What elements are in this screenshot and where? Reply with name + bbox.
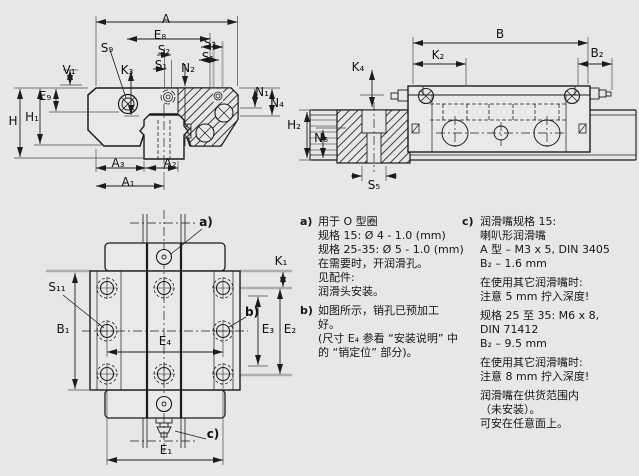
dim-label-N6: N₆	[314, 132, 328, 145]
note-line: 在使用其它润滑嘴时:	[480, 276, 637, 290]
note-line: 喇叭形润滑嘴	[480, 229, 637, 243]
dim-label-A1: A₁	[121, 176, 134, 189]
note-line: 润滑嘴规格 15:	[480, 215, 637, 229]
dim-label-S1-left: S₁	[155, 59, 167, 72]
note-line: 好。	[318, 318, 472, 332]
dim-label-S11: S₁₁	[48, 281, 65, 294]
dim-label-A2: A₂	[163, 157, 176, 170]
dim-label-K3: K₃	[121, 64, 134, 77]
note-paragraph: 在使用其它润滑嘴时: 注意 8 mm 拧入深度!	[480, 356, 637, 384]
dim-label-K2: K₂	[432, 49, 445, 62]
side-view	[299, 37, 636, 181]
callout-a: a)	[199, 216, 213, 229]
note-line: DIN 71412	[480, 323, 637, 337]
note-paragraph: 润滑嘴规格 15: 喇叭形润滑嘴 A 型 – M3 x 5, DIN 3405 …	[480, 215, 637, 271]
note-paragraph: 规格 25 至 35: M6 x 8, DIN 71412 B₂ – 9.5 m…	[480, 309, 637, 351]
dim-label-B2: B₂	[590, 47, 603, 60]
note-line: 注意 8 mm 拧入深度!	[480, 370, 637, 384]
note-line: B₂ – 9.5 mm	[480, 337, 637, 351]
dim-label-S5: S₅	[368, 179, 380, 192]
note-line: 在需要时，开润滑孔。	[318, 257, 472, 271]
cross-section-view	[14, 16, 280, 190]
callout-b: b)	[245, 306, 259, 319]
note-line: 规格 25-35: Ø 5 - 1.0 (mm)	[318, 243, 472, 257]
dim-label-N4: N₄	[270, 97, 284, 110]
dim-label-N2: N₂	[181, 62, 195, 75]
dim-label-K4: K₄	[352, 61, 365, 74]
note-b: b) 如图所示，销孔已预加工 好。 (尺寸 E₄ 参看 “安装说明” 中 的 “…	[300, 304, 472, 360]
note-line: 可安在任意面上。	[480, 417, 637, 431]
note-line: （未安装）。	[480, 403, 637, 417]
dim-label-H: H	[8, 115, 17, 128]
dim-label-S1-right: S₁	[202, 51, 214, 64]
dim-label-S9: S₉	[101, 42, 113, 55]
note-paragraph: 润滑嘴在供货范围内 （未安装）。 可安在任意面上。	[480, 389, 637, 431]
dim-label-S2-left: S₂	[158, 44, 170, 57]
note-line: 规格 25 至 35: M6 x 8,	[480, 309, 637, 323]
note-line: 的 “销定位” 部分)。	[318, 346, 472, 360]
note-a: a) 用于 O 型圈 规格 15: Ø 4 - 1.0 (mm) 规格 25-3…	[300, 215, 472, 299]
dim-label-E1: E₁	[160, 444, 172, 457]
dim-label-A: A	[162, 13, 170, 26]
dim-label-E2: E₂	[284, 323, 296, 336]
note-line: 用于 O 型圈	[318, 215, 472, 229]
callout-c: c)	[207, 428, 220, 441]
note-line: 润滑头安装。	[318, 285, 472, 299]
dim-label-B: B	[496, 28, 504, 41]
dim-label-H1: H₁	[25, 111, 39, 124]
dim-label-A3: A₃	[111, 157, 124, 170]
note-c-tag: c)	[462, 215, 474, 229]
note-line: 如图所示，销孔已预加工	[318, 304, 472, 318]
note-line: 润滑嘴在供货范围内	[480, 389, 637, 403]
note-line: A 型 – M3 x 5, DIN 3405	[480, 243, 637, 257]
dim-label-E8: E₈	[154, 29, 166, 42]
dim-label-V1: V₁	[62, 64, 75, 77]
dim-label-E3: E₃	[262, 323, 274, 336]
note-line: 注意 5 mm 拧入深度!	[480, 290, 637, 304]
dim-label-S2-right: S₂	[204, 37, 216, 50]
note-line: (尺寸 E₄ 参看 “安装说明” 中	[318, 332, 472, 346]
note-line: 规格 15: Ø 4 - 1.0 (mm)	[318, 229, 472, 243]
note-b-tag: b)	[300, 304, 313, 318]
dim-label-N1: N₁	[255, 86, 269, 99]
note-a-tag: a)	[300, 215, 312, 229]
note-line: B₂ – 1.6 mm	[480, 257, 637, 271]
note-line: 在使用其它润滑嘴时:	[480, 356, 637, 370]
note-line: 见配件:	[318, 271, 472, 285]
dim-label-H2: H₂	[287, 119, 301, 132]
catalog-figure: A E₈ S₂ S₁ N₂ S₂ S₁ S₉ K₃ V₁ E₉ H H₁ N₁ …	[0, 0, 639, 476]
dim-label-K1: K₁	[275, 255, 288, 268]
dim-label-E4: E₄	[159, 335, 171, 348]
dim-label-E9: E₉	[39, 90, 51, 103]
note-paragraph: 在使用其它润滑嘴时: 注意 5 mm 拧入深度!	[480, 276, 637, 304]
note-c: c) 润滑嘴规格 15: 喇叭形润滑嘴 A 型 – M3 x 5, DIN 34…	[462, 215, 637, 436]
dim-label-B1: B₁	[56, 323, 69, 336]
